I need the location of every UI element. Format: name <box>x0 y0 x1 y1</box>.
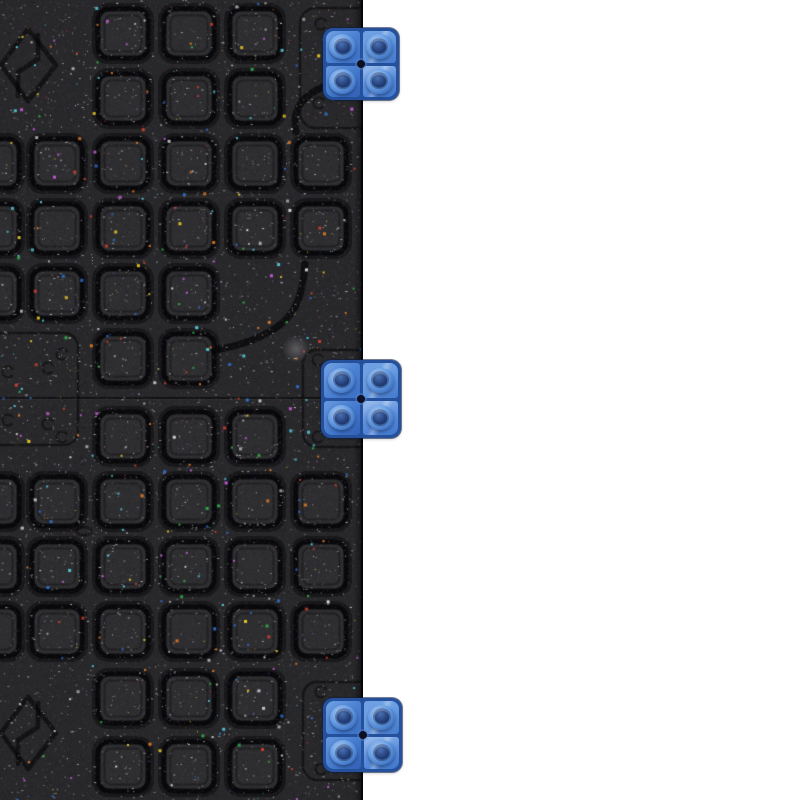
clip-stud <box>330 705 357 730</box>
clip-stud <box>366 34 393 59</box>
clip-quadrant <box>326 66 360 98</box>
clip-stud <box>367 368 394 393</box>
clip-stud <box>368 705 395 730</box>
clip-quadrant <box>363 31 397 63</box>
clip-quadrant <box>324 363 360 398</box>
clip-stud <box>330 740 357 765</box>
clip-quadrant <box>364 737 399 770</box>
product-photo <box>0 0 800 800</box>
clip-quadrant <box>326 701 361 734</box>
clip-quadrant <box>326 31 360 63</box>
rubber-tile-pair <box>0 0 363 800</box>
clip-stud <box>329 34 356 59</box>
connector-clip-middle <box>321 360 401 438</box>
clip-stud <box>368 740 395 765</box>
clip-stud <box>329 69 356 94</box>
connector-clip-top <box>323 28 399 100</box>
clip-stud <box>328 368 355 393</box>
connector-clip-bottom <box>323 698 402 772</box>
clip-stud <box>366 69 393 94</box>
clip-quadrant <box>324 401 360 436</box>
clip-stud <box>328 405 355 430</box>
clip-stud <box>367 405 394 430</box>
clip-quadrant <box>363 363 399 398</box>
clip-quadrant <box>363 401 399 436</box>
rubber-tile-texture <box>0 0 363 800</box>
clip-center-hole <box>359 731 367 739</box>
clip-quadrant <box>363 66 397 98</box>
clip-quadrant <box>364 701 399 734</box>
clip-quadrant <box>326 737 361 770</box>
clip-center-hole <box>357 60 365 68</box>
clip-center-hole <box>357 395 365 403</box>
